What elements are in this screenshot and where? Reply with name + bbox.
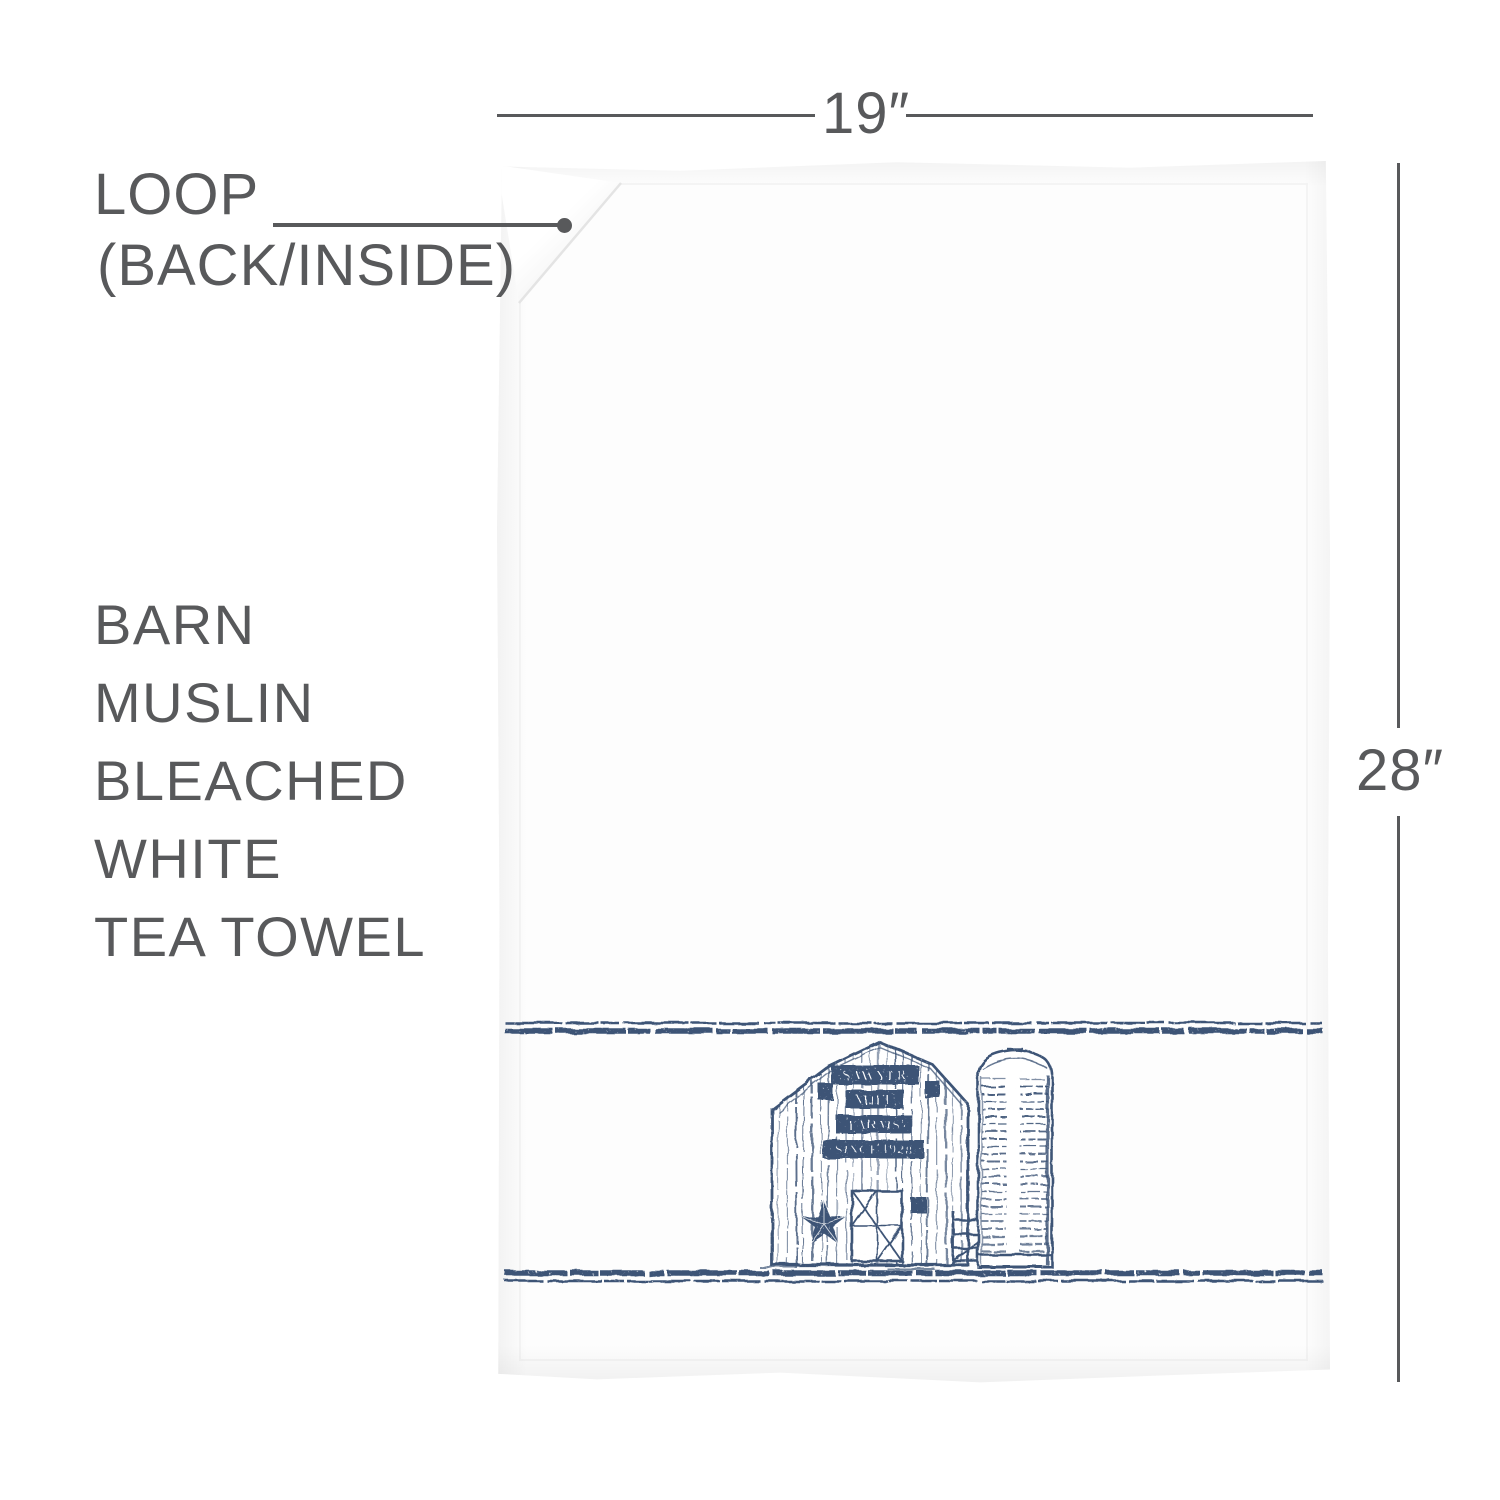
product-title-line: MUSLIN	[94, 664, 426, 742]
barn-sign-line1: SAWYER	[842, 1068, 907, 1084]
loop-pointer-line	[273, 223, 559, 227]
loop-label-line1: LOOP	[94, 166, 259, 224]
barn-sign-line4: SINCE 1928	[835, 1142, 912, 1157]
barn-vent-right	[925, 1081, 940, 1098]
product-title-line: BARN	[94, 586, 426, 664]
width-dimension-line-right	[906, 114, 1313, 117]
barn-window	[910, 1197, 926, 1213]
product-title-line: TEA TOWEL	[94, 898, 426, 976]
product-diagram: SAWYER MILL FARMS SINCE 1928	[0, 0, 1500, 1500]
towel: SAWYER MILL FARMS SINCE 1928	[497, 161, 1330, 1383]
product-title-line: BLEACHED	[94, 742, 426, 820]
stripe-bottom	[505, 1273, 1323, 1281]
height-dimension-line-top	[1397, 163, 1400, 728]
product-title-line: WHITE	[94, 820, 426, 898]
ground-marks	[759, 1267, 935, 1269]
loop-pointer-dot	[557, 218, 572, 233]
towel-print: SAWYER MILL FARMS SINCE 1928	[497, 161, 1330, 1383]
barn-vent-left	[818, 1083, 833, 1100]
height-dimension-line-bottom	[1397, 816, 1400, 1382]
silo-graphic	[978, 1049, 1052, 1267]
loop-label-line2: (BACK/INSIDE)	[97, 237, 516, 295]
height-dimension-label: 28″	[1346, 742, 1454, 800]
width-dimension-label: 19″	[816, 85, 916, 143]
product-title: BARN MUSLIN BLEACHED WHITE TEA TOWEL	[94, 586, 426, 976]
stripe-top	[505, 1023, 1323, 1031]
width-dimension-line-left	[497, 114, 815, 117]
barn-graphic: SAWYER MILL FARMS SINCE 1928	[759, 1039, 1052, 1269]
barn-sign-line3: FARMS	[848, 1118, 901, 1134]
barn-door	[852, 1191, 902, 1261]
barn-sign-line2: MILL	[855, 1093, 896, 1109]
